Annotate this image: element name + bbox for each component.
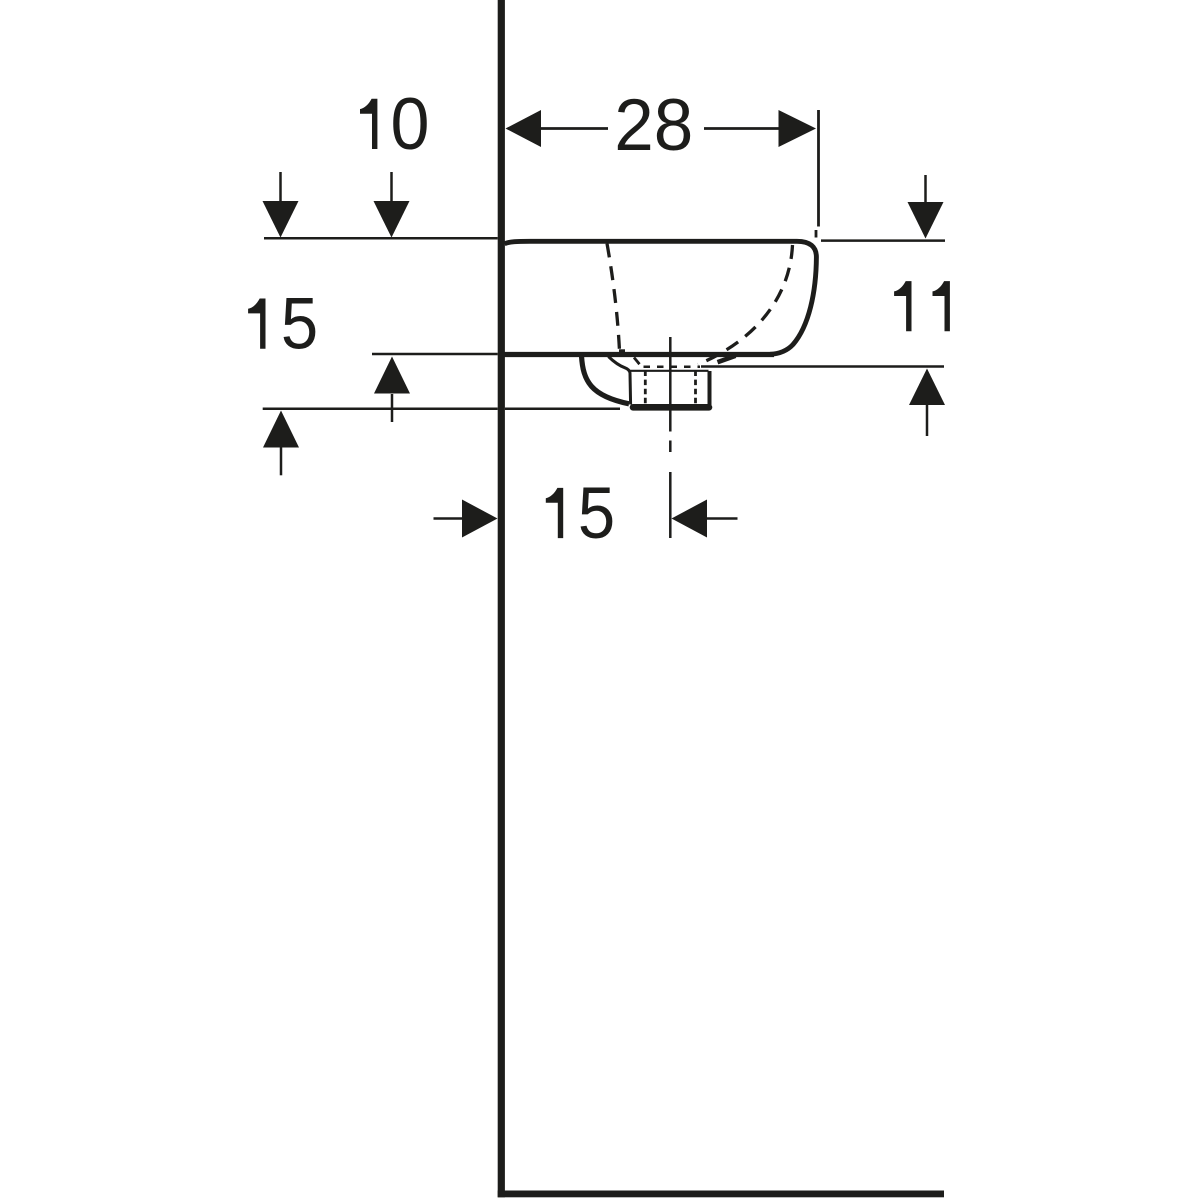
svg-text:5: 5 [281,284,318,365]
svg-text:28: 28 [614,85,693,166]
svg-text:0: 0 [391,84,430,165]
svg-text:5: 5 [578,473,615,554]
